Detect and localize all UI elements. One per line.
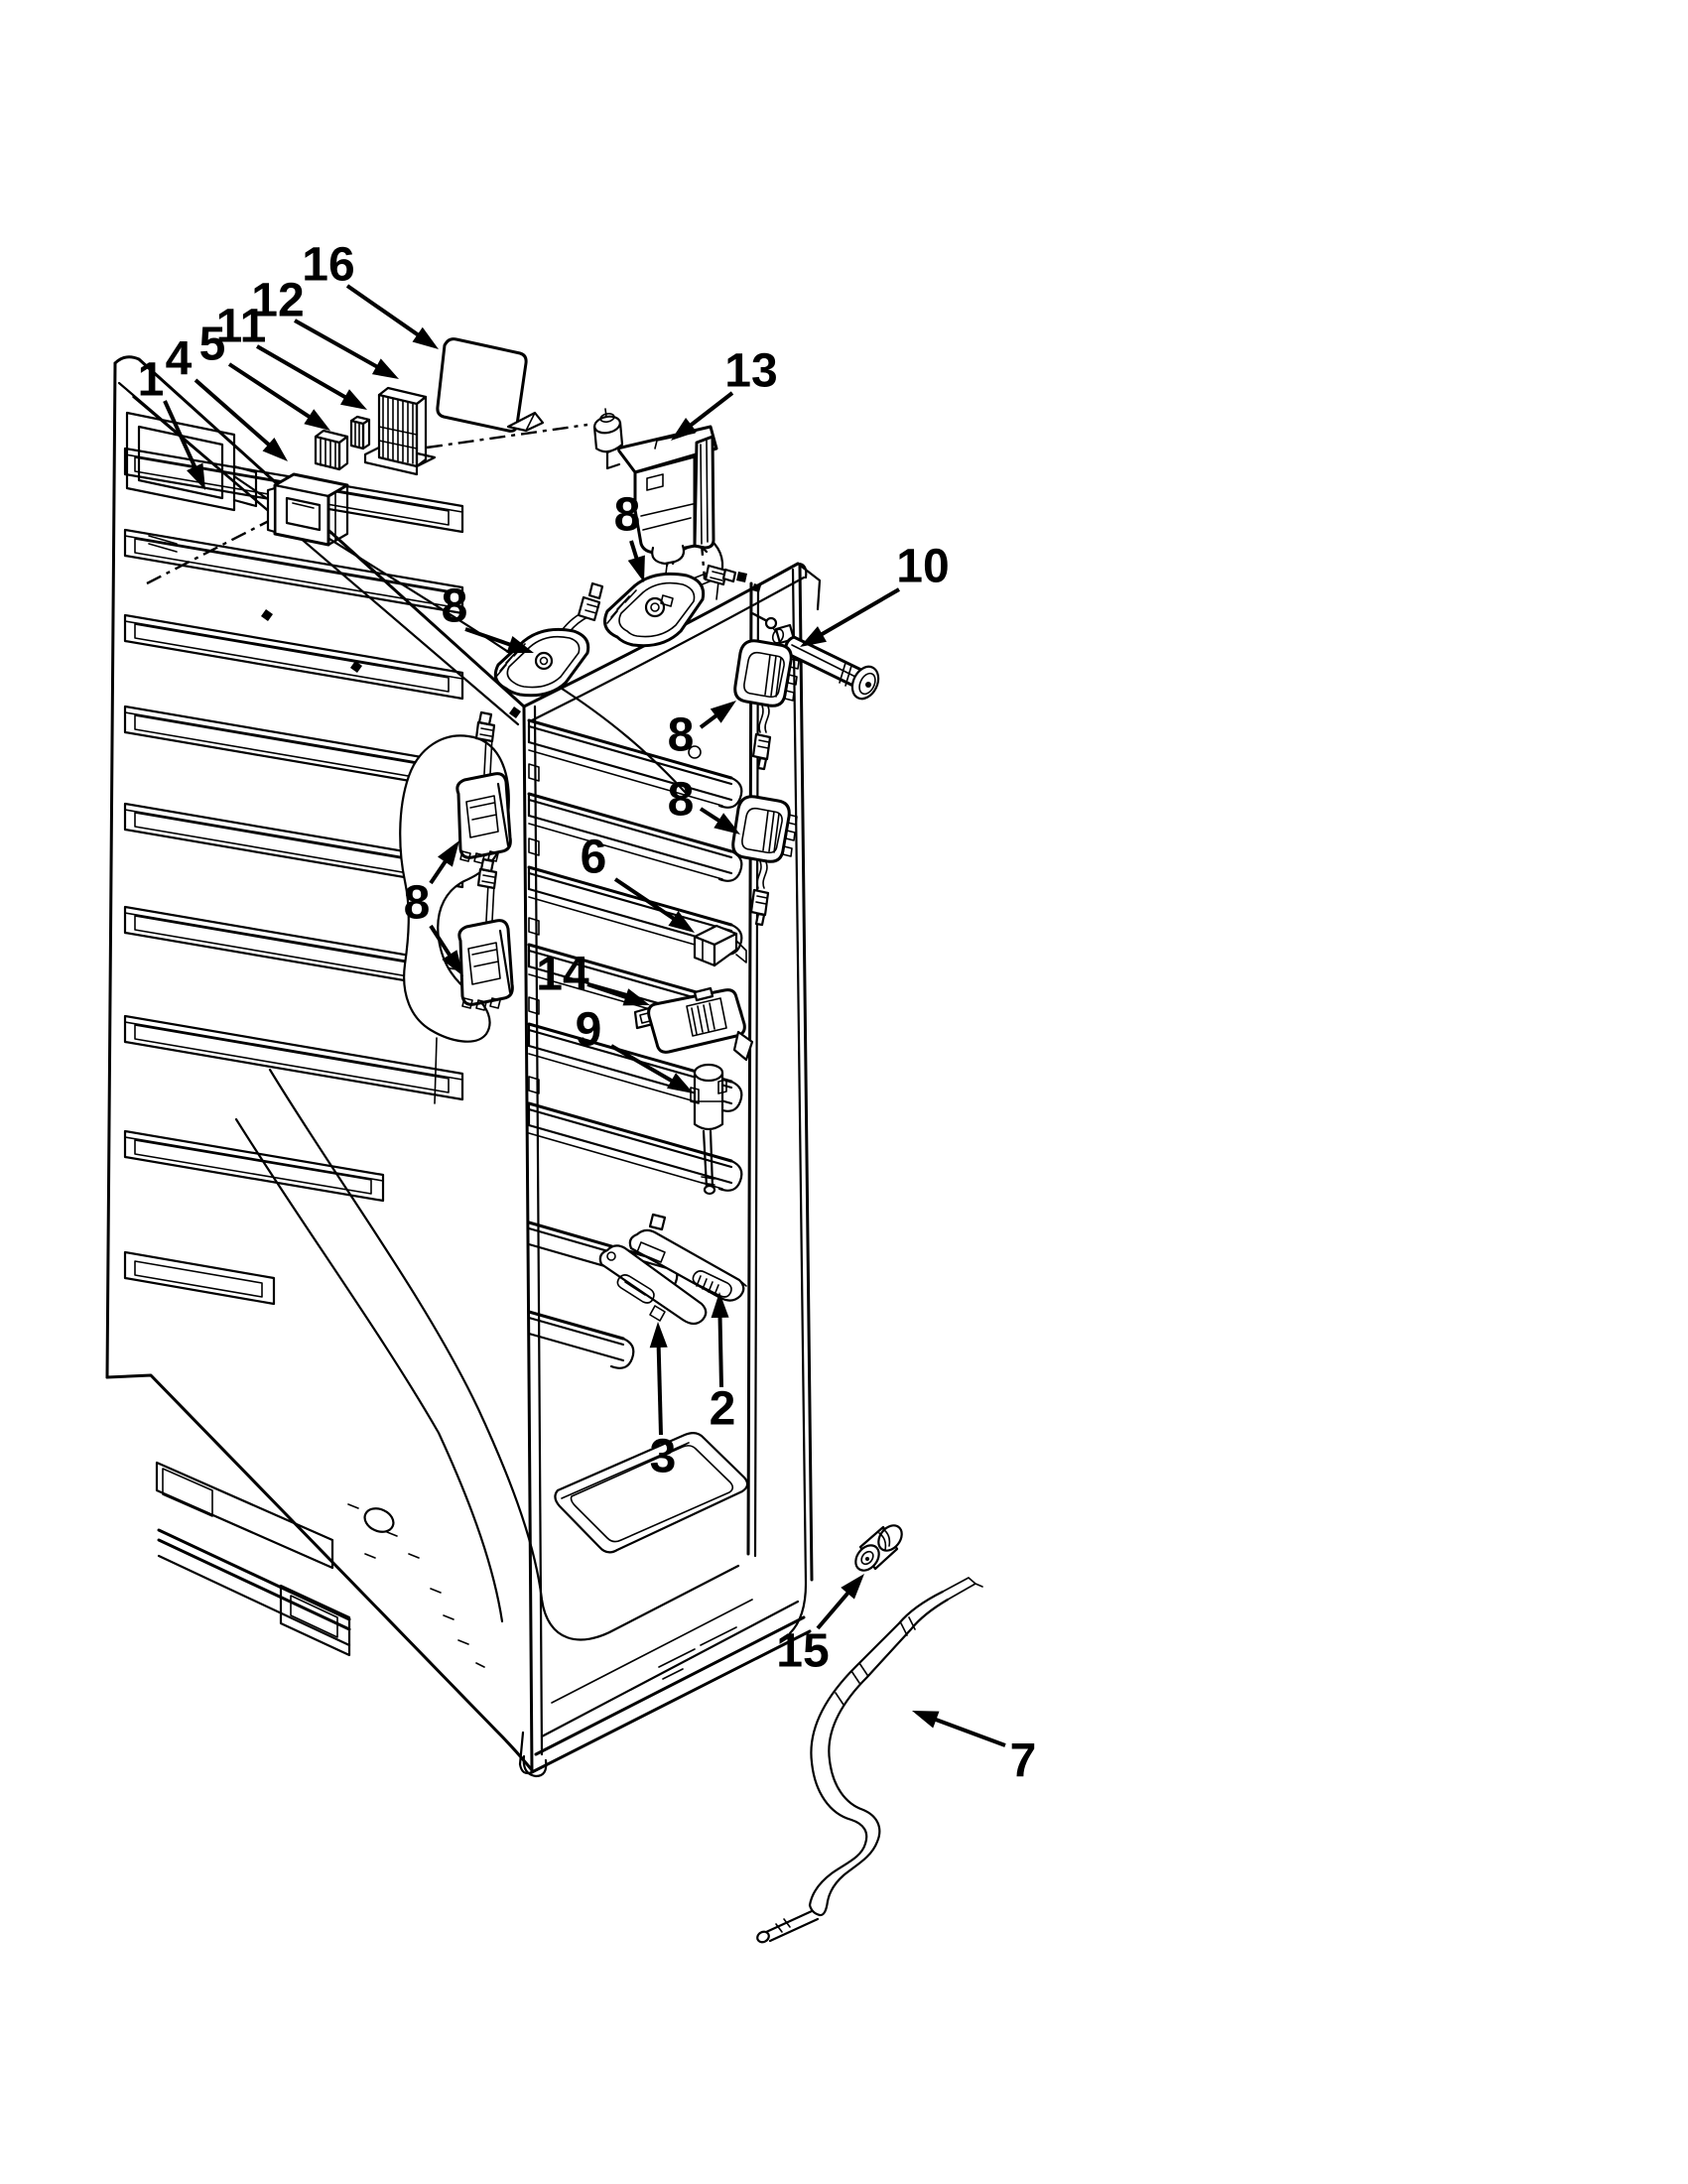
callout-water-fill-tube: 7 [912,1711,1036,1788]
callout-mounting-bracket: 13 [671,345,778,442]
callout-number: 10 [896,541,949,593]
left-wall-lower-rails [157,1463,484,1667]
shelf-clip [695,926,746,965]
callout-number: 3 [650,1431,677,1483]
bottom-sill-outer [532,1631,810,1772]
callout-number: 12 [251,275,304,327]
callout-trim-rail-b: 3 [650,1322,677,1483]
leader-line [687,393,732,429]
callout-number: 13 [724,345,777,398]
thermistor-sensor [691,1065,726,1194]
grommet [851,1521,907,1575]
callout-cover-plate: 16 [302,239,439,350]
arrowhead-icon [800,626,827,647]
sensor-module [351,417,369,449]
callout-number: 8 [404,877,431,930]
callout-number: 6 [581,832,607,884]
callout-layer: 145111216138810886814923157 [138,239,1037,1788]
arrowhead-icon [304,409,330,431]
callout-number: 15 [776,1625,829,1678]
callout-lamp-socket-upper: 8 [668,701,736,762]
light-module-top [605,566,735,646]
arrowhead-icon [912,1711,940,1729]
callout-light-module-top: 8 [614,489,645,583]
callout-number: 8 [442,580,468,633]
arrowhead-icon [622,988,650,1005]
rail-clip [650,1215,665,1229]
light-shield [316,431,347,469]
leader-line [931,1718,1005,1745]
leader-line [818,1589,851,1628]
callout-water-filter: 10 [800,541,950,648]
arrowhead-icon [372,358,399,379]
callout-number: 4 [166,333,193,386]
floor-seam-outer [270,1070,738,1639]
support-bracket [635,988,752,1060]
leader-line [659,1342,661,1435]
leader-line [817,589,899,637]
light-housing [268,474,347,545]
callout-number: 14 [536,949,589,1001]
cover-plate [438,339,543,432]
floor-seam-inner [236,1119,502,1621]
callout-number: 8 [668,709,695,762]
leader-line [295,321,382,369]
callout-number: 2 [710,1383,736,1436]
callout-number: 1 [138,354,165,407]
callout-number: 9 [576,1004,602,1057]
arrowhead-icon [650,1322,668,1348]
left-wall-bottom-edge [107,1375,532,1770]
callout-trim-rail-a: 2 [710,1292,736,1436]
control-board [365,388,435,474]
recess-tail-line [435,1038,437,1103]
callout-number: 16 [302,239,354,292]
callout-number: 8 [668,774,695,827]
callout-number: 7 [1010,1735,1037,1788]
arrowhead-icon [711,701,736,723]
leader-line [465,629,515,646]
arrowhead-icon [628,556,645,582]
callout-grommet: 15 [776,1574,864,1678]
front-left-edge [107,363,115,1377]
leader-line [347,286,423,338]
arrowhead-icon [340,389,367,410]
callout-number: 8 [614,489,641,542]
mounting-bracket [593,409,716,564]
front-right-edge [748,564,812,1633]
lamp-socket-upper [735,641,799,769]
callout-light-module-left: 8 [442,580,534,654]
wall-light-module-lower [459,859,512,1010]
callout-support-bracket: 14 [536,949,650,1006]
lamp-socket-lower [733,797,797,925]
parts-diagram-page: 145111216138810886814923157 [0,0,1688,2184]
arrowhead-icon [413,327,439,349]
refrigerator-liner-diagram: 145111216138810886814923157 [0,0,1688,2184]
leader-line [719,1312,721,1387]
